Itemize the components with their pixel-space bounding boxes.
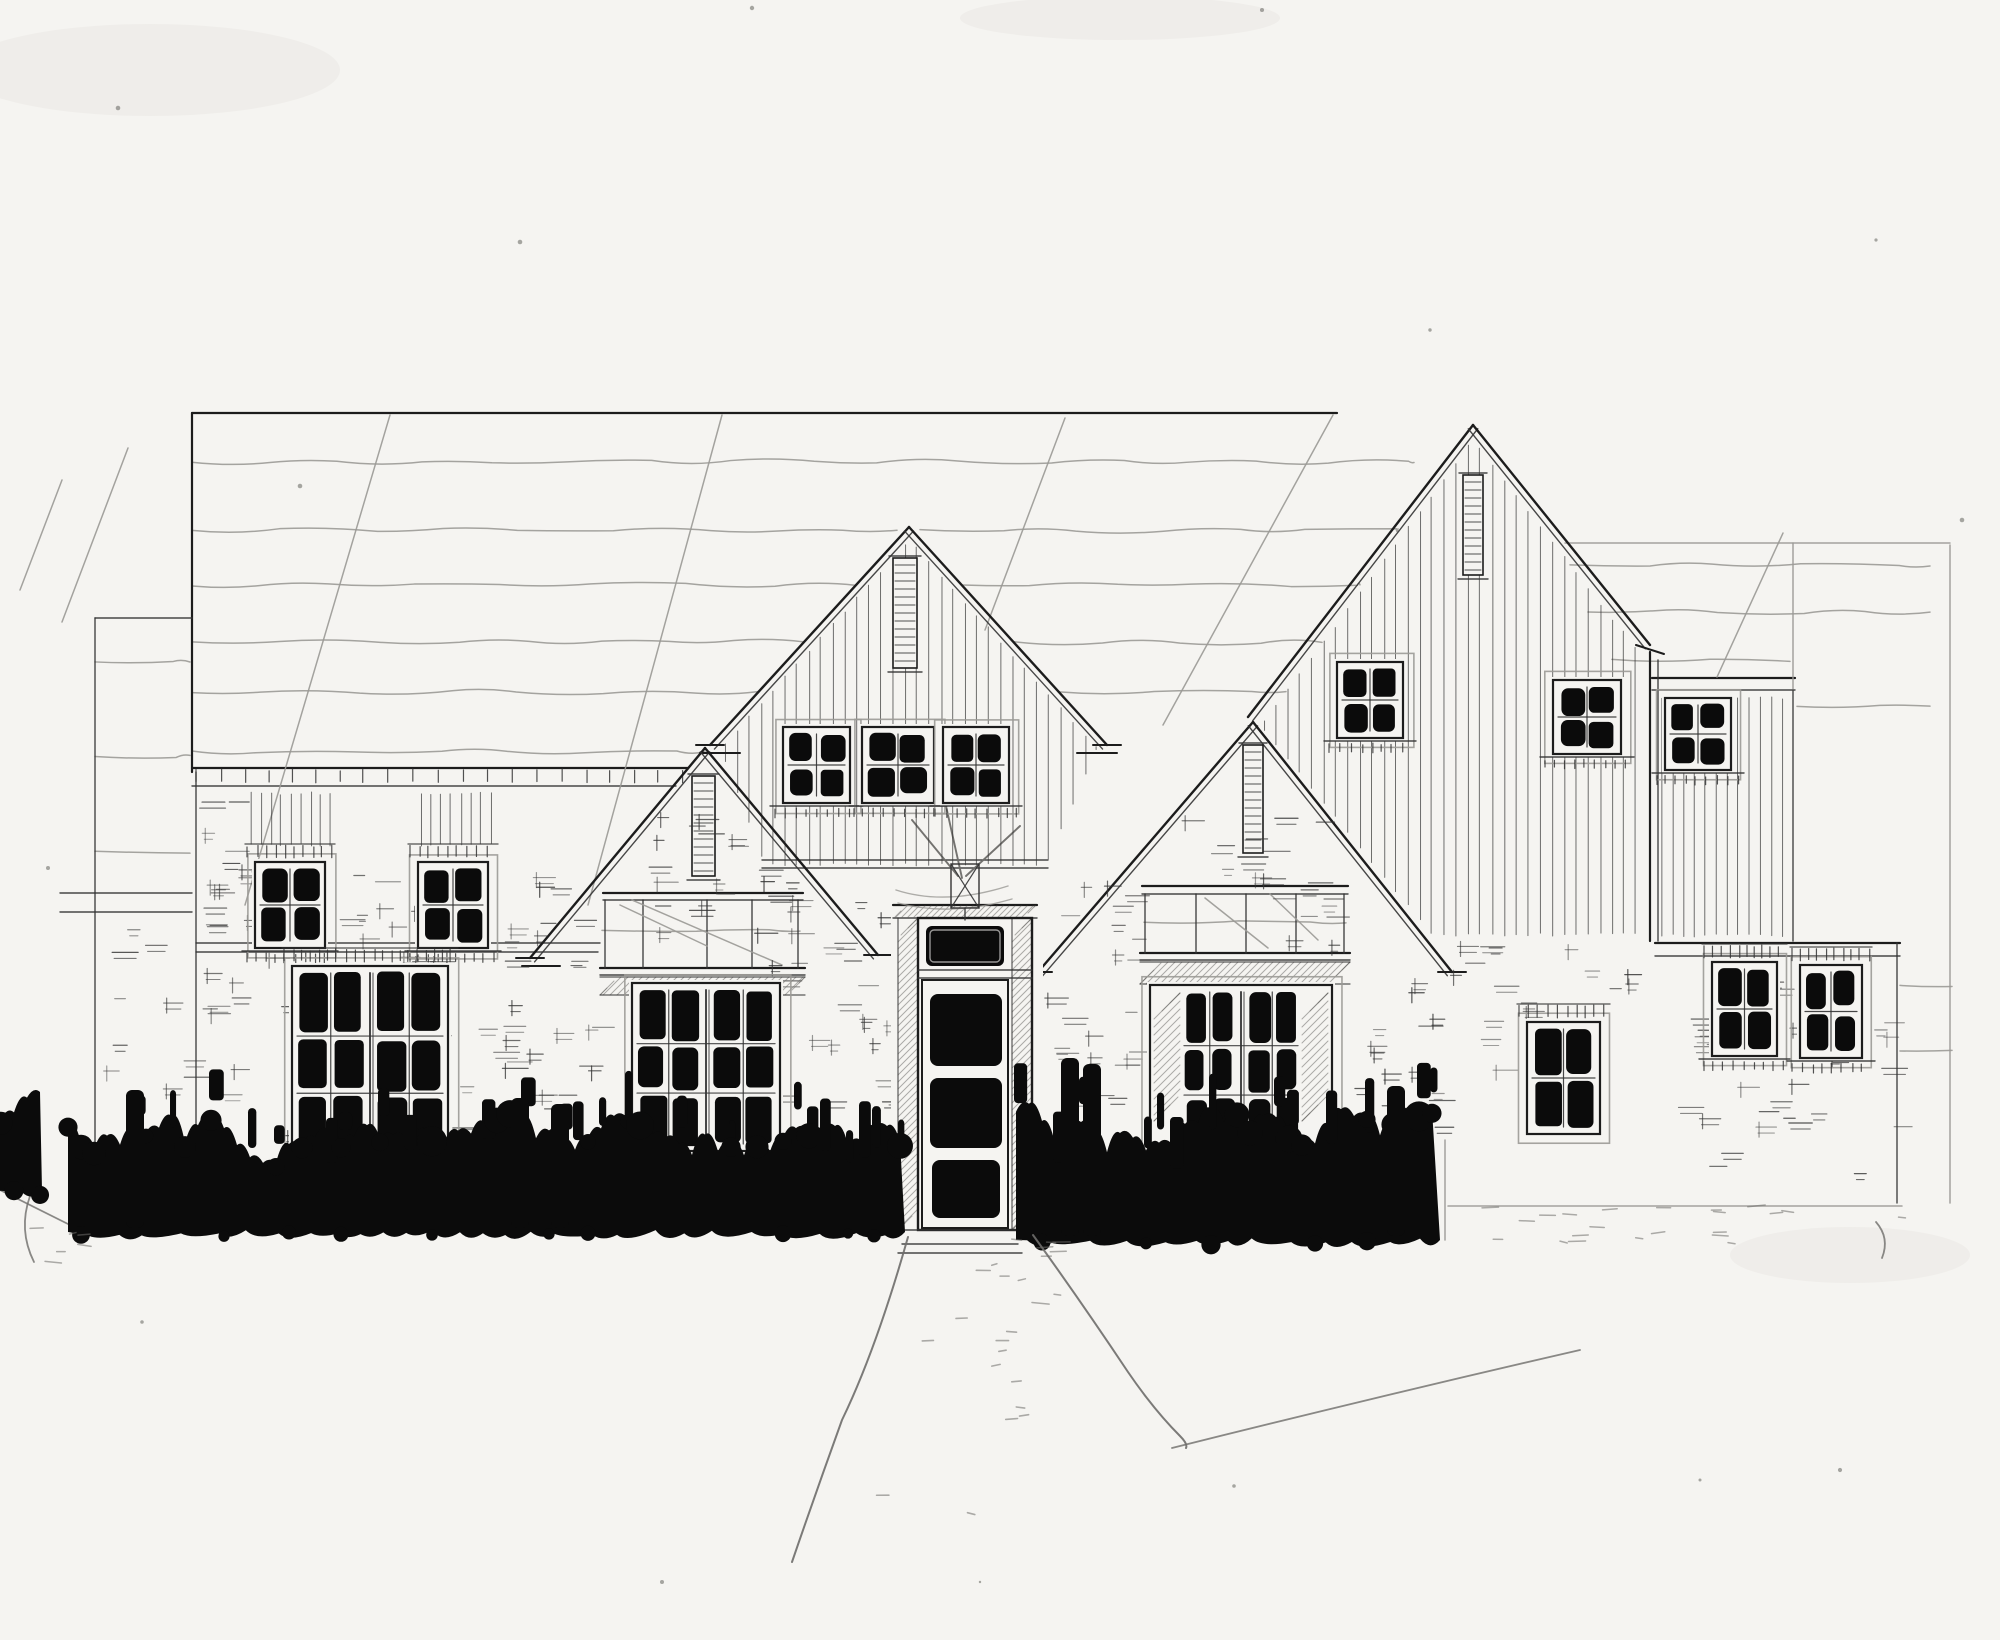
center-gable-window-1 xyxy=(770,720,863,818)
right-gable-window-1 xyxy=(1324,653,1416,752)
shrub-band xyxy=(0,1090,49,1204)
ground-and-walkway xyxy=(30,1205,1905,1562)
garage-window-2 xyxy=(1787,947,1875,1073)
garage-window-1 xyxy=(1699,944,1790,1071)
elevation-sketch xyxy=(0,0,2000,1640)
sketch-paper xyxy=(0,0,2000,1640)
wing-window xyxy=(1652,690,1744,785)
door-glass-panel xyxy=(930,994,1002,1066)
right-gable-window-2 xyxy=(1540,671,1634,768)
gable-vent xyxy=(1238,743,1268,857)
gable-vent xyxy=(888,556,922,672)
center-gable-window-3 xyxy=(930,720,1022,818)
door-glass-panel xyxy=(930,1078,1002,1148)
center-gable-window-2 xyxy=(849,719,947,817)
gable-vent xyxy=(687,774,720,880)
left-band-siding-2 xyxy=(421,792,491,846)
left-small-window-2 xyxy=(405,844,501,963)
door-glass-panel xyxy=(932,1160,1000,1218)
left-band-siding-1 xyxy=(251,792,330,846)
windows xyxy=(242,653,1875,1169)
door-transom xyxy=(926,926,1004,966)
entry-side-window xyxy=(1517,1004,1610,1143)
left-small-window-1 xyxy=(242,844,338,963)
gable-vent xyxy=(1458,473,1488,579)
